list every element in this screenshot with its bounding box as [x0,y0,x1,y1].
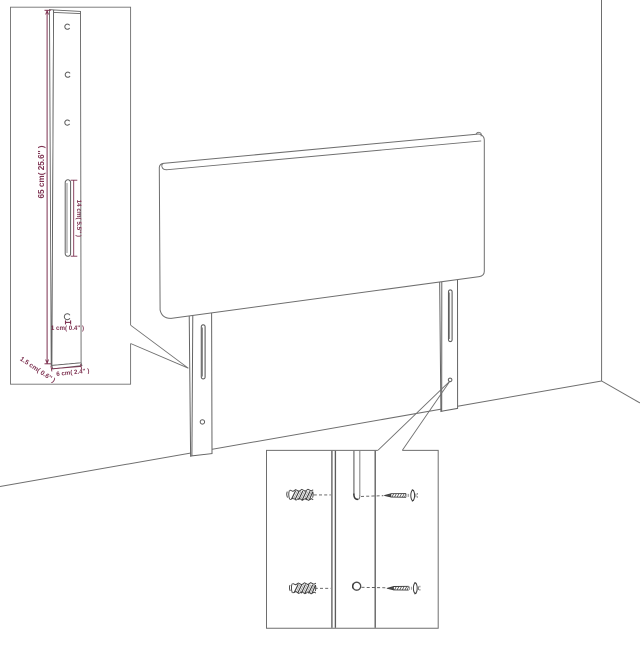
svg-text:14 cm( 5.5'' ): 14 cm( 5.5'' ) [75,200,82,237]
svg-text:1 cm( 0.4'' ): 1 cm( 0.4'' ) [51,325,84,332]
svg-text:65 cm( 25.6'' ): 65 cm( 25.6'' ) [37,145,46,198]
